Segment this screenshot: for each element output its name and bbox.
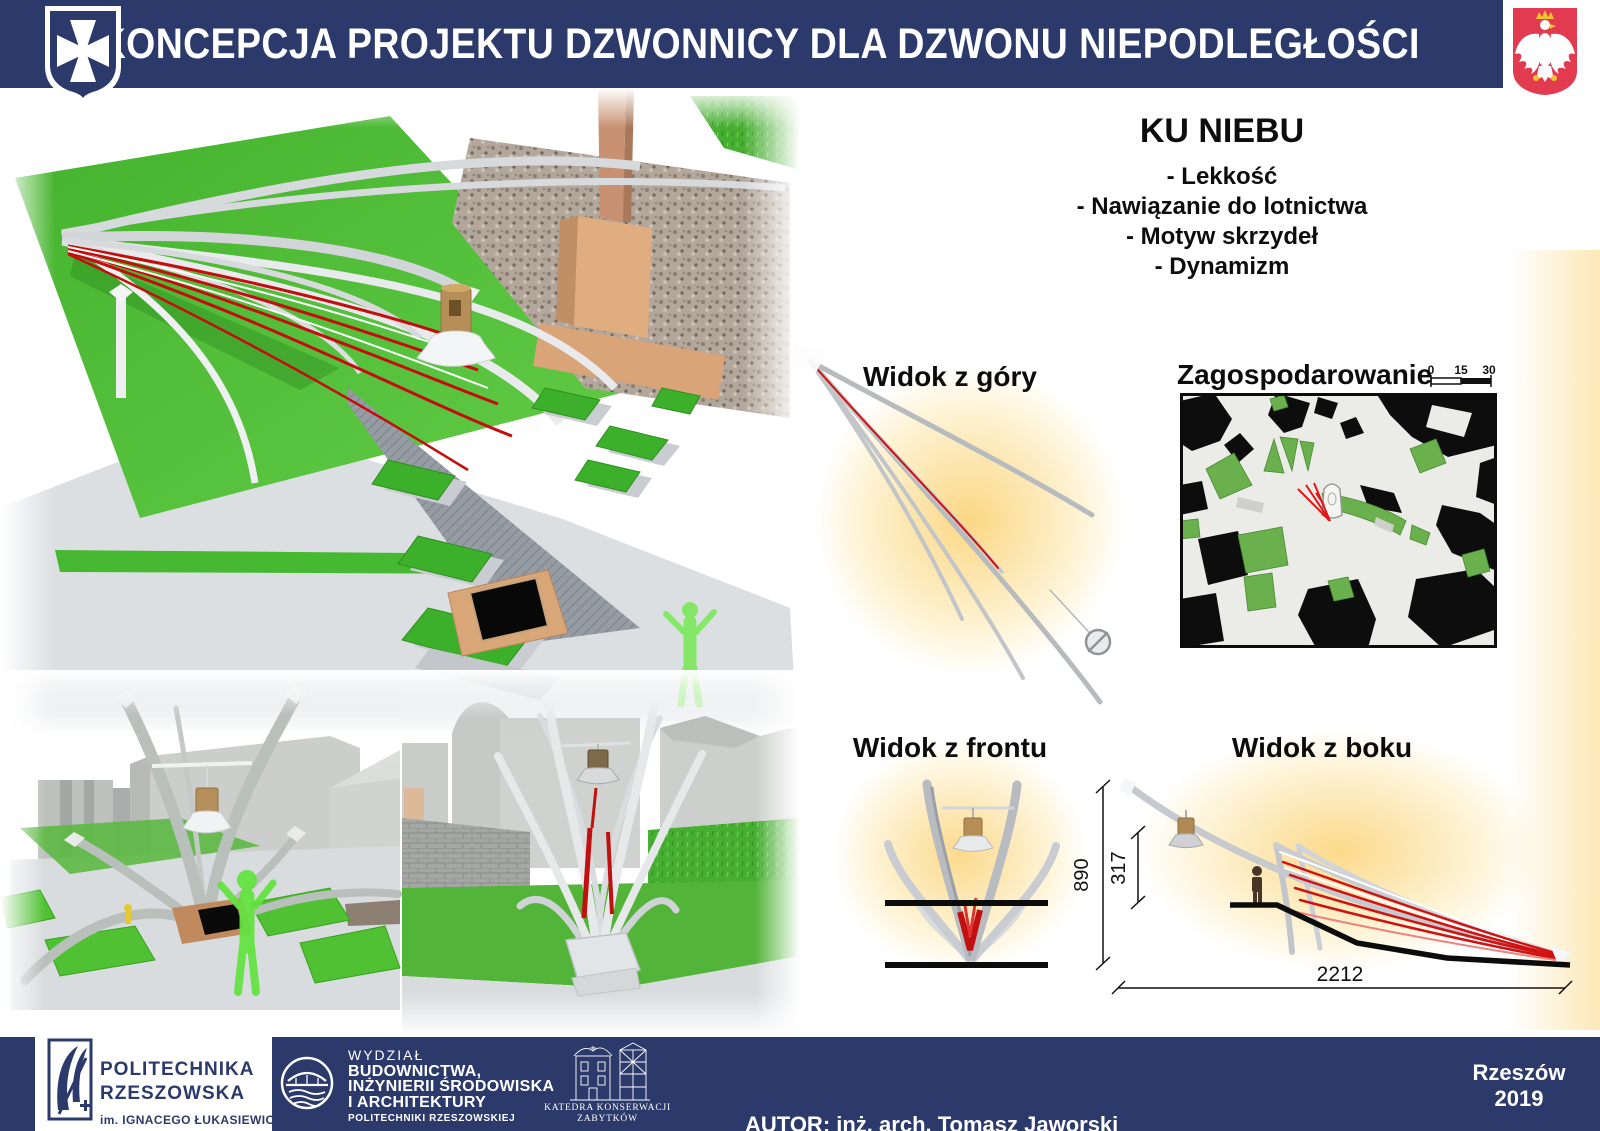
render-visualizations bbox=[0, 88, 800, 1037]
concept-bullet-list: - Lekkość - Nawiązanie do lotnictwa - Mo… bbox=[952, 162, 1492, 282]
year-label: 2019 bbox=[1444, 1086, 1594, 1112]
top-view-label: Widok z góry bbox=[820, 361, 1080, 393]
front-view-label: Widok z frontu bbox=[820, 732, 1080, 764]
drawing-front-view bbox=[885, 784, 1056, 965]
dim-bell-height: 317 bbox=[1108, 851, 1130, 884]
faculty-line: BUDOWNICTWA, bbox=[348, 1064, 554, 1080]
university-name: POLITECHNIKA RZESZOWSKA im. IGNACEGO ŁUK… bbox=[100, 1058, 291, 1131]
map-scale-bar: 0 15 30 bbox=[1426, 362, 1498, 390]
drawing-side-view bbox=[1120, 778, 1572, 965]
university-line: POLITECHNIKA bbox=[100, 1058, 291, 1082]
university-line: RZESZOWSKA bbox=[100, 1082, 291, 1106]
side-view-label: Widok z boku bbox=[1192, 732, 1452, 764]
department-line: KATEDRA KONSERWACJI bbox=[540, 1103, 675, 1114]
concept-bullet: - Nawiązanie do lotnictwa bbox=[952, 192, 1492, 222]
svg-text:15: 15 bbox=[1454, 363, 1468, 377]
concept-bullet: - Lekkość bbox=[952, 162, 1492, 192]
site-plan-label: Zagospodarowanie bbox=[1177, 359, 1417, 391]
department-name: KATEDRA KONSERWACJI ZABYTKÓW bbox=[540, 1103, 675, 1125]
city-year: Rzeszów 2019 bbox=[1444, 1060, 1594, 1112]
rzeszow-crest-icon bbox=[44, 6, 122, 104]
svg-text:30: 30 bbox=[1482, 363, 1496, 377]
author-line: AUTOR: inż. arch. Tomasz Jaworski bbox=[745, 1112, 1280, 1131]
site-plan-map bbox=[1180, 393, 1497, 648]
university-line: im. IGNACEGO ŁUKASIEWICZA bbox=[100, 1108, 291, 1131]
faculty-line: INŻYNIERII ŚRODOWISKA bbox=[348, 1079, 554, 1095]
concept-bullet: - Motyw skrzydeł bbox=[952, 222, 1492, 252]
credits: AUTOR: inż. arch. Tomasz Jaworski PROMOT… bbox=[745, 1060, 1280, 1131]
faculty-line: POLITECHNIKI RZESZOWSKIEJ bbox=[348, 1111, 554, 1127]
city-label: Rzeszów bbox=[1444, 1060, 1594, 1086]
department-line: ZABYTKÓW bbox=[540, 1114, 675, 1125]
faculty-line: I ARCHITEKTURY bbox=[348, 1095, 554, 1111]
bell-icon bbox=[953, 808, 993, 851]
dim-side-length: 2212 bbox=[1317, 963, 1364, 986]
page-title: KONCEPCJA PROJEKTU DZWONNICY DLA DZWONU … bbox=[0, 0, 1503, 88]
small-figure bbox=[124, 904, 132, 924]
drawing-top-view bbox=[790, 344, 1110, 702]
politechnika-rzeszowska-logo bbox=[47, 1038, 93, 1121]
department-logo bbox=[560, 1042, 655, 1102]
faculty-logo bbox=[280, 1056, 334, 1110]
concept-title: KU NIEBU bbox=[1022, 112, 1422, 151]
dim-front-height: 890 bbox=[1071, 858, 1093, 891]
faculty-line: WYDZIAŁ bbox=[348, 1048, 554, 1064]
faculty-name: WYDZIAŁ BUDOWNICTWA, INŻYNIERII ŚRODOWIS… bbox=[348, 1048, 554, 1127]
human-silhouette bbox=[1252, 866, 1262, 904]
footer-left-block bbox=[0, 1037, 35, 1131]
poland-eagle-icon bbox=[1509, 4, 1581, 100]
poster-page: KONCEPCJA PROJEKTU DZWONNICY DLA DZWONU … bbox=[0, 0, 1600, 1131]
concept-bullet: - Dynamizm bbox=[952, 252, 1492, 282]
